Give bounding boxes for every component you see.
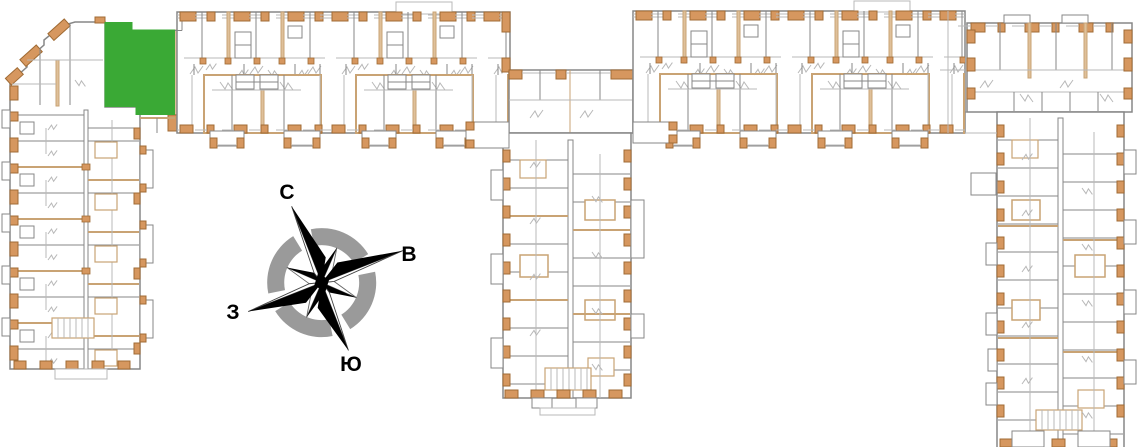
svg-text:З: З	[226, 301, 239, 324]
svg-text:С: С	[279, 181, 294, 204]
svg-text:Ю: Ю	[340, 353, 362, 376]
svg-text:В: В	[401, 243, 416, 266]
